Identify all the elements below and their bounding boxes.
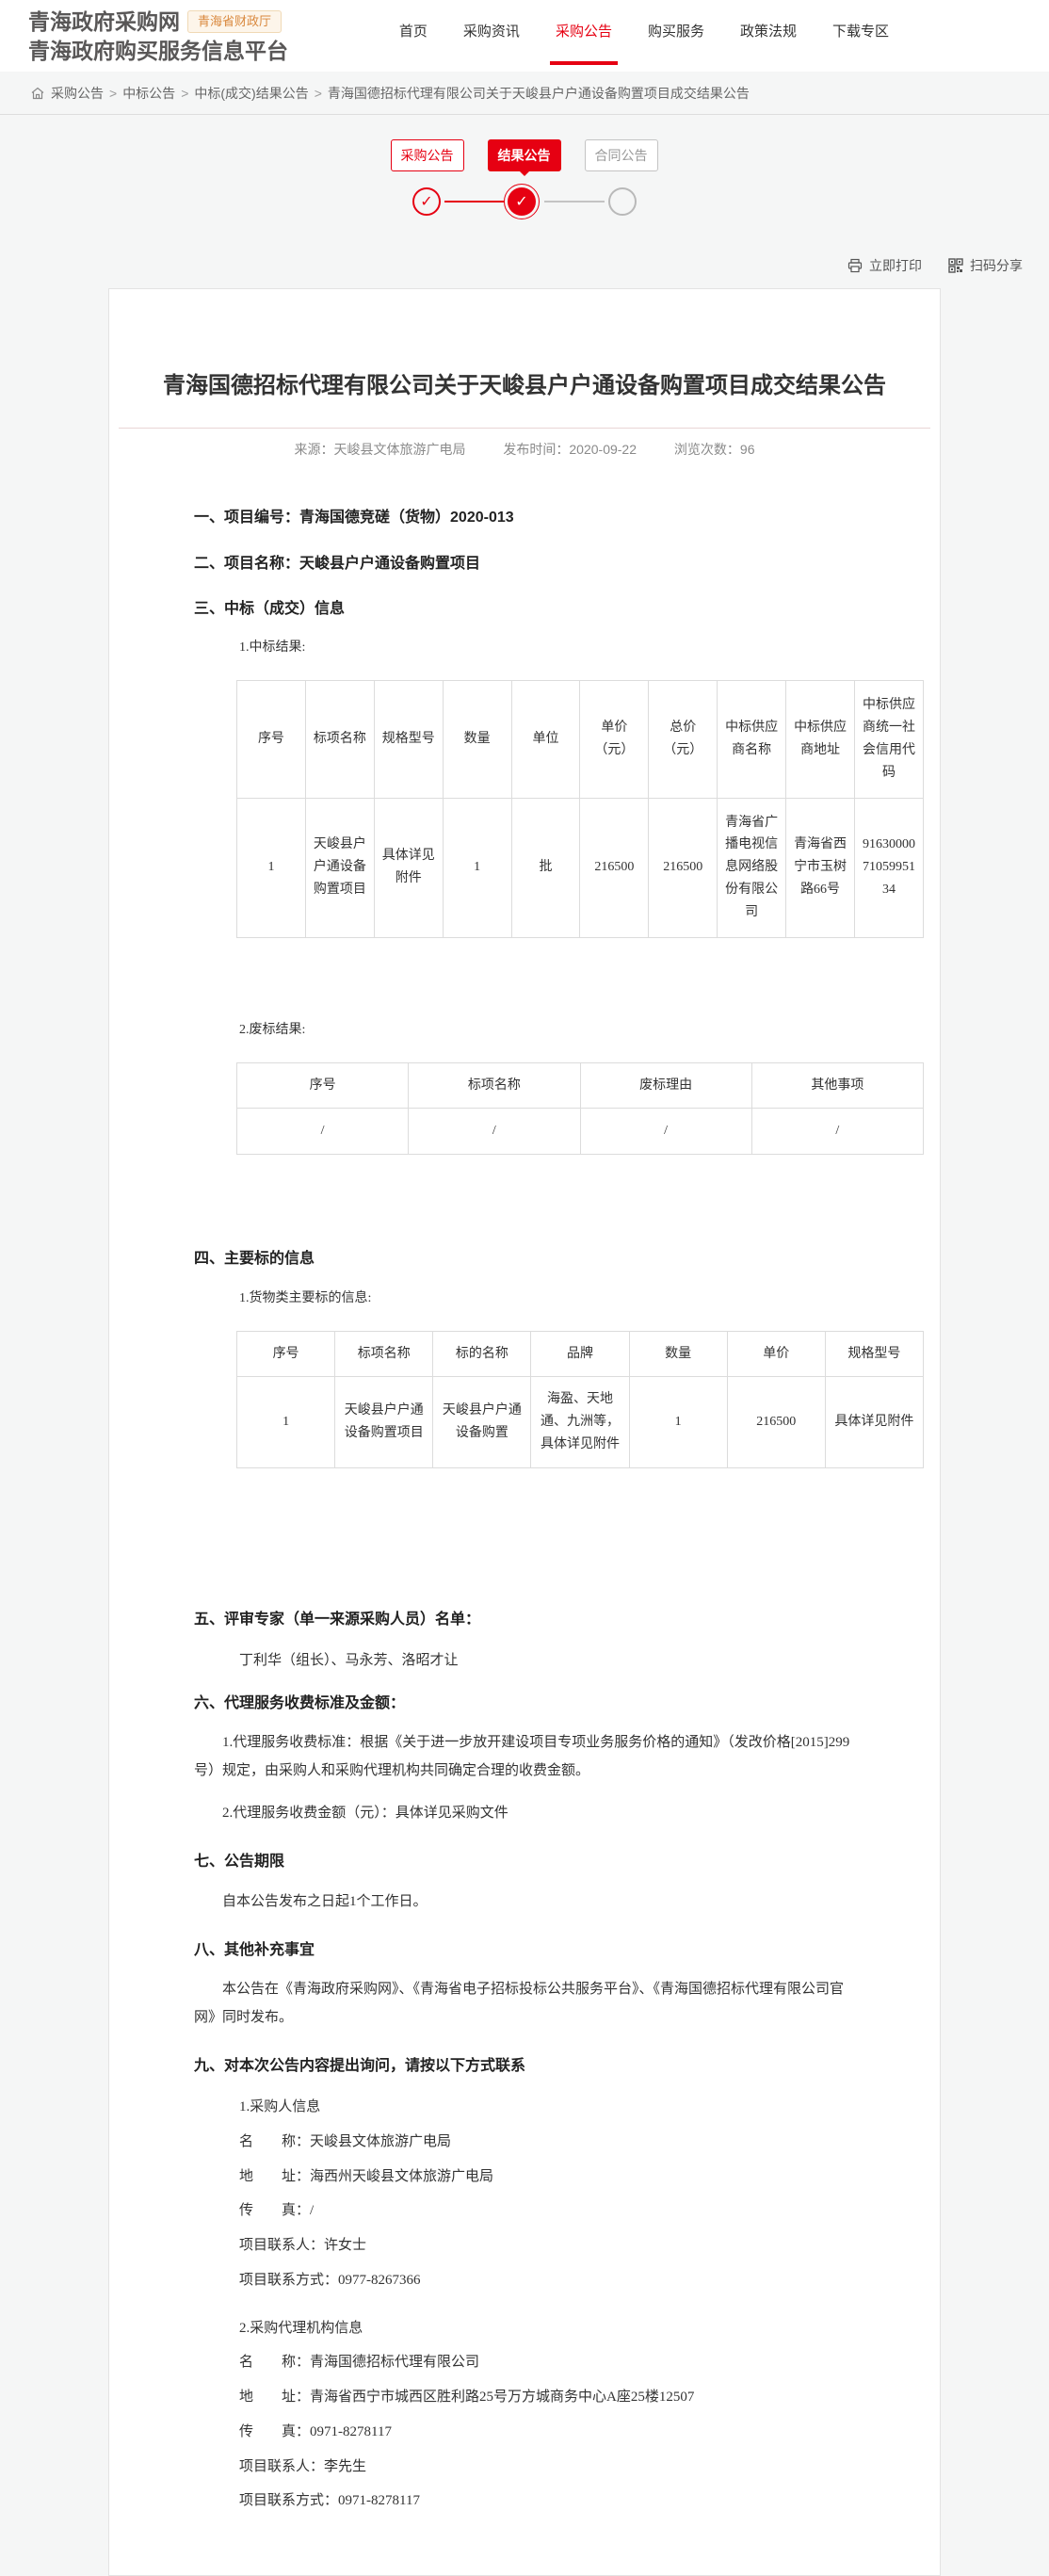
table-row: 1 天峻县户户通设备购置项目 天峻县户户通设备购置 海盈、天地通、九洲等，具体详… xyxy=(237,1377,924,1467)
table-header-row: 序号 标项名称 规格型号 数量 单位 单价（元） 总价（元） 中标供应商名称 中… xyxy=(237,681,924,798)
cell-quantity: 1 xyxy=(443,798,511,937)
col-lot-name: 标项名称 xyxy=(409,1062,580,1109)
expert-names: 丁利华（组长）、马永芳、洛昭才让 xyxy=(239,1649,855,1669)
meta-views-label: 浏览次数： xyxy=(674,442,740,457)
cell-supplier-address: 青海省西宁市玉树路66号 xyxy=(786,798,855,937)
table-row: / / / / xyxy=(237,1109,924,1155)
agency-name: 名 称：青海国德招标代理有限公司 xyxy=(239,2345,855,2380)
step-contract-notice[interactable]: 合同公告 xyxy=(585,139,658,171)
cell-lot-name: 天峻县户户通设备购置项目 xyxy=(335,1377,433,1467)
cell-subject-name: 天峻县户户通设备购置 xyxy=(433,1377,531,1467)
breadcrumb-separator: > xyxy=(109,86,117,101)
meta-source-label: 来源： xyxy=(295,442,334,457)
purchaser-contact-block: 1.采购人信息 名 称：天峻县文体旅游广电局 地 址：海西州天峻县文体旅游广电局… xyxy=(194,2090,855,2298)
section-experts-heading: 五、评审专家（单一来源采购人员）名单： xyxy=(194,1610,855,1630)
section-notice-period-heading: 七、公告期限 xyxy=(194,1852,855,1872)
col-unit: 单位 xyxy=(511,681,580,798)
nav-item-home[interactable]: 首页 xyxy=(399,21,428,54)
cell-spec-model: 具体详见附件 xyxy=(374,798,443,937)
project-name-value: 天峻县户户通设备购置项目 xyxy=(299,556,480,572)
agency-fee-standard: 1.代理服务收费标准：根据《关于进一步放开建设项目专项业务服务价格的通知》（发改… xyxy=(194,1729,855,1785)
step-purchase-notice[interactable]: 采购公告 xyxy=(391,139,464,171)
col-total-price: 总价（元） xyxy=(649,681,718,798)
goods-subject-subheading: 1.货物类主要标的信息: xyxy=(239,1288,855,1306)
col-seq: 序号 xyxy=(237,681,306,798)
cell-credit-code: 916300007105995134 xyxy=(855,798,924,937)
breadcrumb-item[interactable]: 中标(成交)结果公告 xyxy=(194,84,308,103)
agency-address: 地 址：青海省西宁市城西区胜利路25号万方城商务中心A座25楼12507 xyxy=(239,2380,855,2415)
col-supplier-name: 中标供应商名称 xyxy=(718,681,786,798)
step-connector-done xyxy=(444,201,505,203)
table-header-row: 序号 标项名称 废标理由 其他事项 xyxy=(237,1062,924,1109)
cell-lot-name: 天峻县户户通设备购置项目 xyxy=(305,798,374,937)
failed-bid-table: 序号 标项名称 废标理由 其他事项 / / / / xyxy=(236,1062,924,1156)
article-card: 青海国德招标代理有限公司关于天峻县户户通设备购置项目成交结果公告 来源：天峻县文… xyxy=(108,288,941,2576)
col-fail-reason: 废标理由 xyxy=(580,1062,751,1109)
col-other: 其他事项 xyxy=(751,1062,923,1109)
cell-brand: 海盈、天地通、九洲等，具体详见附件 xyxy=(531,1377,629,1467)
article-toolbar: 立即打印 扫码分享 xyxy=(0,256,1049,275)
meta-publish-label: 发布时间： xyxy=(503,442,569,457)
section1-heading: 一、项目编号： xyxy=(194,510,299,526)
nav-item-policies[interactable]: 政策法规 xyxy=(740,21,797,54)
home-icon[interactable] xyxy=(30,86,45,101)
nav-item-procurement-notices[interactable]: 采购公告 xyxy=(556,21,612,54)
col-subject-name: 标的名称 xyxy=(433,1331,531,1377)
cell-total-price: 216500 xyxy=(649,798,718,937)
purchaser-info-title: 1.采购人信息 xyxy=(239,2090,855,2125)
cell-spec-model: 具体详见附件 xyxy=(825,1377,923,1467)
step-pending-circle xyxy=(608,187,637,216)
print-button[interactable]: 立即打印 xyxy=(847,256,922,275)
section2-heading: 二、项目名称： xyxy=(194,556,299,572)
col-unit-price: 单价 xyxy=(727,1331,825,1377)
cell-unit-price: 216500 xyxy=(580,798,649,937)
col-credit-code: 中标供应商统一社会信用代码 xyxy=(855,681,924,798)
article-meta: 来源：天峻县文体旅游广电局 发布时间：2020-09-22 浏览次数：96 xyxy=(109,429,940,468)
cell-seq: / xyxy=(237,1109,409,1155)
section-supplement-heading: 八、其他补充事宜 xyxy=(194,1940,855,1961)
article-title: 青海国德招标代理有限公司关于天峻县户户通设备购置项目成交结果公告 xyxy=(109,368,940,403)
site-header: 青海政府采购网青海省财政厅 青海政府购买服务信息平台 首页 采购资讯 采购公告 … xyxy=(0,0,1049,72)
nav-item-downloads[interactable]: 下载专区 xyxy=(832,21,889,54)
purchaser-contact-person: 项目联系人：许女士 xyxy=(239,2228,855,2263)
breadcrumb-item[interactable]: 采购公告 xyxy=(51,84,104,103)
agency-contact-phone: 项目联系方式：0971-8278117 xyxy=(239,2484,855,2519)
col-supplier-address: 中标供应商地址 xyxy=(786,681,855,798)
step-result-notice[interactable]: 结果公告 xyxy=(488,139,561,171)
section-award-info-heading: 三、中标（成交）信息 xyxy=(194,599,855,620)
meta-source-value: 天峻县文体旅游广电局 xyxy=(334,442,466,457)
col-quantity: 数量 xyxy=(443,681,511,798)
notice-period-text: 自本公告发布之日起1个工作日。 xyxy=(194,1888,855,1916)
col-unit-price: 单价（元） xyxy=(580,681,649,798)
step-current-ring: ✓ xyxy=(504,184,540,219)
award-result-table: 序号 标项名称 规格型号 数量 单位 单价（元） 总价（元） 中标供应商名称 中… xyxy=(236,680,924,937)
cell-quantity: 1 xyxy=(629,1377,727,1467)
site-logo[interactable]: 青海政府采购网青海省财政厅 青海政府购买服务信息平台 xyxy=(28,8,288,66)
table-header-row: 序号 标项名称 标的名称 品牌 数量 单价 规格型号 xyxy=(237,1331,924,1377)
col-brand: 品牌 xyxy=(531,1331,629,1377)
print-button-label: 立即打印 xyxy=(869,256,922,275)
nav-item-purchase-services[interactable]: 购买服务 xyxy=(648,21,704,54)
purchaser-name: 名 称：天峻县文体旅游广电局 xyxy=(239,2125,855,2160)
cell-fail-reason: / xyxy=(580,1109,751,1155)
col-quantity: 数量 xyxy=(629,1331,727,1377)
failed-bid-subheading: 2.废标结果: xyxy=(239,1019,855,1038)
supplement-text: 本公告在《青海政府采购网》、《青海省电子招标投标公共服务平台》、《青海国德招标代… xyxy=(194,1976,855,2032)
purchaser-fax: 传 真：/ xyxy=(239,2194,855,2228)
meta-publish-date: 2020-09-22 xyxy=(569,442,637,457)
subject-info-table: 序号 标项名称 标的名称 品牌 数量 单价 规格型号 1 天峻县户户通设备购置项… xyxy=(236,1331,924,1468)
qrcode-icon xyxy=(948,258,963,273)
cell-seq: 1 xyxy=(237,798,306,937)
agency-contact-block: 2.采购代理机构信息 名 称：青海国德招标代理有限公司 地 址：青海省西宁市城西… xyxy=(194,2311,855,2519)
logo-title: 青海政府采购网 xyxy=(28,8,180,37)
breadcrumb-current: 青海国德招标代理有限公司关于天峻县户户通设备购置项目成交结果公告 xyxy=(328,84,750,103)
agency-info-title: 2.采购代理机构信息 xyxy=(239,2311,855,2346)
section-project-number: 一、项目编号：青海国德竞磋（货物）2020-013 xyxy=(194,508,855,528)
col-spec-model: 规格型号 xyxy=(374,681,443,798)
step-connector-pending xyxy=(544,201,605,203)
purchaser-address: 地 址：海西州天峻县文体旅游广电局 xyxy=(239,2160,855,2195)
section-agency-fee-heading: 六、代理服务收费标准及金额： xyxy=(194,1693,855,1714)
award-result-subheading: 1.中标结果: xyxy=(239,637,855,656)
section-contact-heading: 九、对本次公告内容提出询问，请按以下方式联系 xyxy=(194,2056,855,2077)
table-row: 1 天峻县户户通设备购置项目 具体详见附件 1 批 216500 216500 … xyxy=(237,798,924,937)
cell-lot-name: / xyxy=(409,1109,580,1155)
section-subject-info-heading: 四、主要标的信息 xyxy=(194,1249,855,1270)
breadcrumb: 采购公告 > 中标公告 > 中标(成交)结果公告 > 青海国德招标代理有限公司关… xyxy=(0,72,1049,115)
agency-contact-person: 项目联系人：李先生 xyxy=(239,2450,855,2485)
breadcrumb-separator: > xyxy=(315,86,322,101)
purchaser-contact-phone: 项目联系方式：0977-8267366 xyxy=(239,2263,855,2298)
nav-item-procurement-news[interactable]: 采购资讯 xyxy=(463,21,520,54)
cell-unit-price: 216500 xyxy=(727,1377,825,1467)
share-button-label: 扫码分享 xyxy=(970,256,1023,275)
logo-subtitle: 青海政府购买服务信息平台 xyxy=(28,37,288,66)
cell-other: / xyxy=(751,1109,923,1155)
col-spec-model: 规格型号 xyxy=(825,1331,923,1377)
col-seq: 序号 xyxy=(237,1062,409,1109)
col-lot-name: 标项名称 xyxy=(335,1331,433,1377)
agency-fee-amount: 2.代理服务收费金额（元）：具体详见采购文件 xyxy=(194,1800,855,1827)
cell-seq: 1 xyxy=(237,1377,335,1467)
finance-dept-badge: 青海省财政厅 xyxy=(187,10,282,33)
breadcrumb-item[interactable]: 中标公告 xyxy=(122,84,175,103)
col-lot-name: 标项名称 xyxy=(305,681,374,798)
section-project-name: 二、项目名称：天峻县户户通设备购置项目 xyxy=(194,554,855,575)
notice-stage-stepper: 采购公告 结果公告 合同公告 ✓ ✓ xyxy=(379,139,670,222)
step-done-check-icon: ✓ xyxy=(412,187,441,216)
printer-icon xyxy=(847,258,863,273)
share-qr-button[interactable]: 扫码分享 xyxy=(948,256,1023,275)
main-nav: 首页 采购资讯 采购公告 购买服务 政策法规 下载专区 xyxy=(399,21,889,54)
project-number-value: 青海国德竞磋（货物）2020-013 xyxy=(299,510,514,526)
cell-supplier-name: 青海省广播电视信息网络股份有限公司 xyxy=(718,798,786,937)
step-current-check-icon: ✓ xyxy=(508,187,536,216)
col-seq: 序号 xyxy=(237,1331,335,1377)
breadcrumb-separator: > xyxy=(181,86,188,101)
cell-unit: 批 xyxy=(511,798,580,937)
agency-fax: 传 真：0971-8278117 xyxy=(239,2415,855,2450)
meta-views-count: 96 xyxy=(740,442,755,457)
